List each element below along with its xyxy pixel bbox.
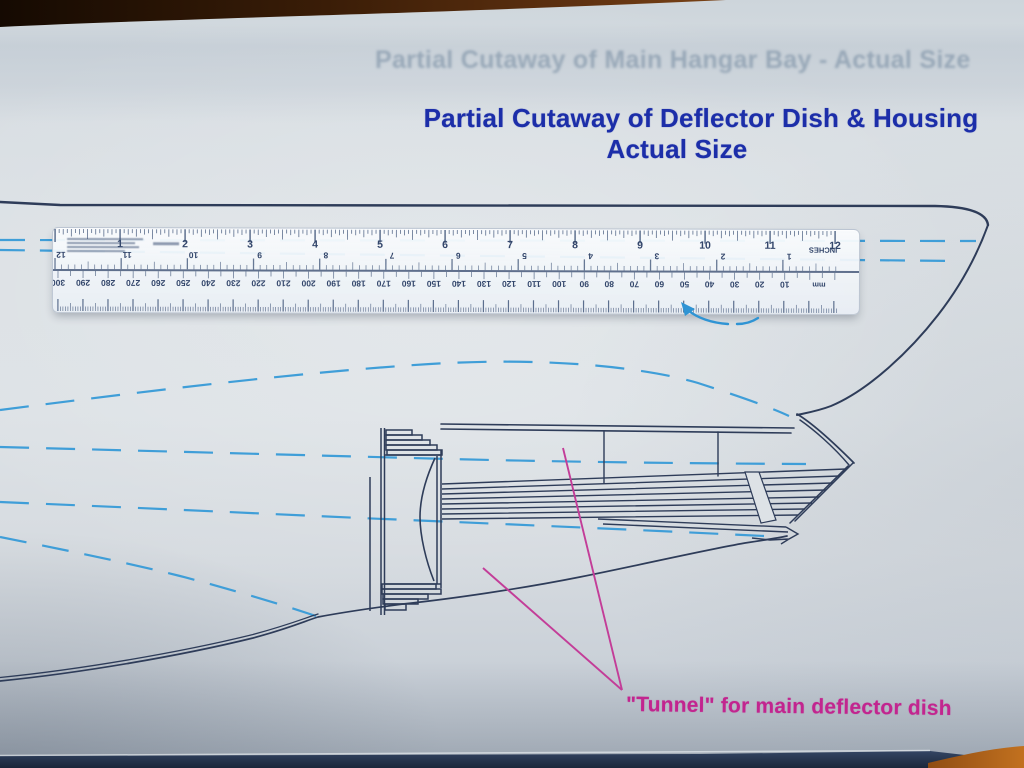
ruler-inch-number: 2 [182, 238, 188, 250]
ruler-inches-label: INCHES [809, 246, 837, 255]
ruler-reverse-inch-number: 6 [456, 251, 461, 261]
ruler-mm-number: 150 [426, 279, 440, 289]
ruler-mm-number: 40 [705, 280, 715, 290]
ruler-mm-number: 100 [552, 279, 566, 289]
ruler: 123456789101112121110987654321INCHES3002… [52, 227, 860, 315]
ruler-mm-label: mm [812, 281, 826, 290]
blueprint-drawing [0, 0, 1024, 768]
ruler-reverse-inch-number: 5 [522, 251, 527, 261]
ruler-mm-number: 210 [276, 278, 290, 288]
ruler-reverse-inch-number: 7 [389, 251, 394, 261]
ruler-mm-number: 140 [452, 279, 466, 289]
ruler-mm-number: 260 [151, 278, 165, 288]
ruler-mm-number: 110 [527, 279, 541, 289]
tunnel-caption: "Tunnel" for main deflector dish [626, 693, 946, 721]
ruler-mm-number: 170 [376, 279, 390, 289]
ruler-mm-number: 180 [351, 279, 365, 289]
ruler-mm-number: 50 [679, 279, 689, 289]
ruler-mm-number: 30 [730, 280, 740, 290]
ruler-inch-number: 5 [377, 239, 383, 251]
ruler-mm-number: 200 [301, 278, 315, 288]
ruler-mm-number: 230 [226, 278, 240, 288]
ruler-mm-number: 120 [502, 279, 516, 289]
ruler-mm-number: 300 [53, 278, 65, 288]
ruler-mm-number: 190 [326, 279, 340, 289]
ruler-reverse-inch-number: 12 [56, 250, 66, 260]
deflector-tunnel-slats [442, 469, 846, 544]
ruler-mm-number: 70 [629, 279, 639, 289]
ruler-mm-number: 250 [176, 278, 190, 288]
ruler-reverse-inch-number: 8 [323, 251, 328, 261]
ruler-reverse-inch-number: 4 [588, 251, 593, 261]
ruler-mm-number: 270 [126, 278, 140, 288]
ruler-reverse-inch-number: 9 [257, 250, 262, 260]
ruler-inch-number: 4 [312, 239, 318, 251]
ruler-reverse-inch-number: 10 [188, 250, 198, 260]
ruler-mm-number: 60 [654, 279, 664, 289]
ruler-mm-number: 80 [604, 279, 614, 289]
ruler-inch-number: 7 [507, 239, 513, 251]
photo-of-blueprint: Partial Cutaway of Main Hangar Bay - Act… [0, 0, 1024, 768]
ruler-mm-number: 160 [401, 279, 415, 289]
ruler-inch-number: 9 [637, 239, 643, 251]
ruler-mm-number: 290 [76, 278, 90, 288]
ruler-mm-number: 280 [101, 278, 115, 288]
ruler-mm-number: 20 [755, 280, 765, 290]
ruler-mm-number: 240 [201, 278, 215, 288]
ruler-mm-number: 130 [477, 279, 491, 289]
ruler-inch-number: 3 [247, 238, 253, 250]
ruler-reverse-inch-number: 2 [720, 252, 725, 262]
ruler-inch-number: 6 [442, 239, 448, 251]
ruler-mm-number: 90 [579, 279, 589, 289]
ruler-mm-number: 10 [780, 280, 790, 290]
ruler-inch-number: 8 [572, 239, 578, 251]
ruler-reverse-inch-number: 3 [654, 251, 659, 261]
ruler-inch-number: 11 [764, 240, 775, 252]
ruler-mm-number: 220 [251, 278, 265, 288]
ruler-reverse-inch-number: 1 [787, 252, 792, 262]
ruler-inch-number: 10 [699, 240, 711, 252]
